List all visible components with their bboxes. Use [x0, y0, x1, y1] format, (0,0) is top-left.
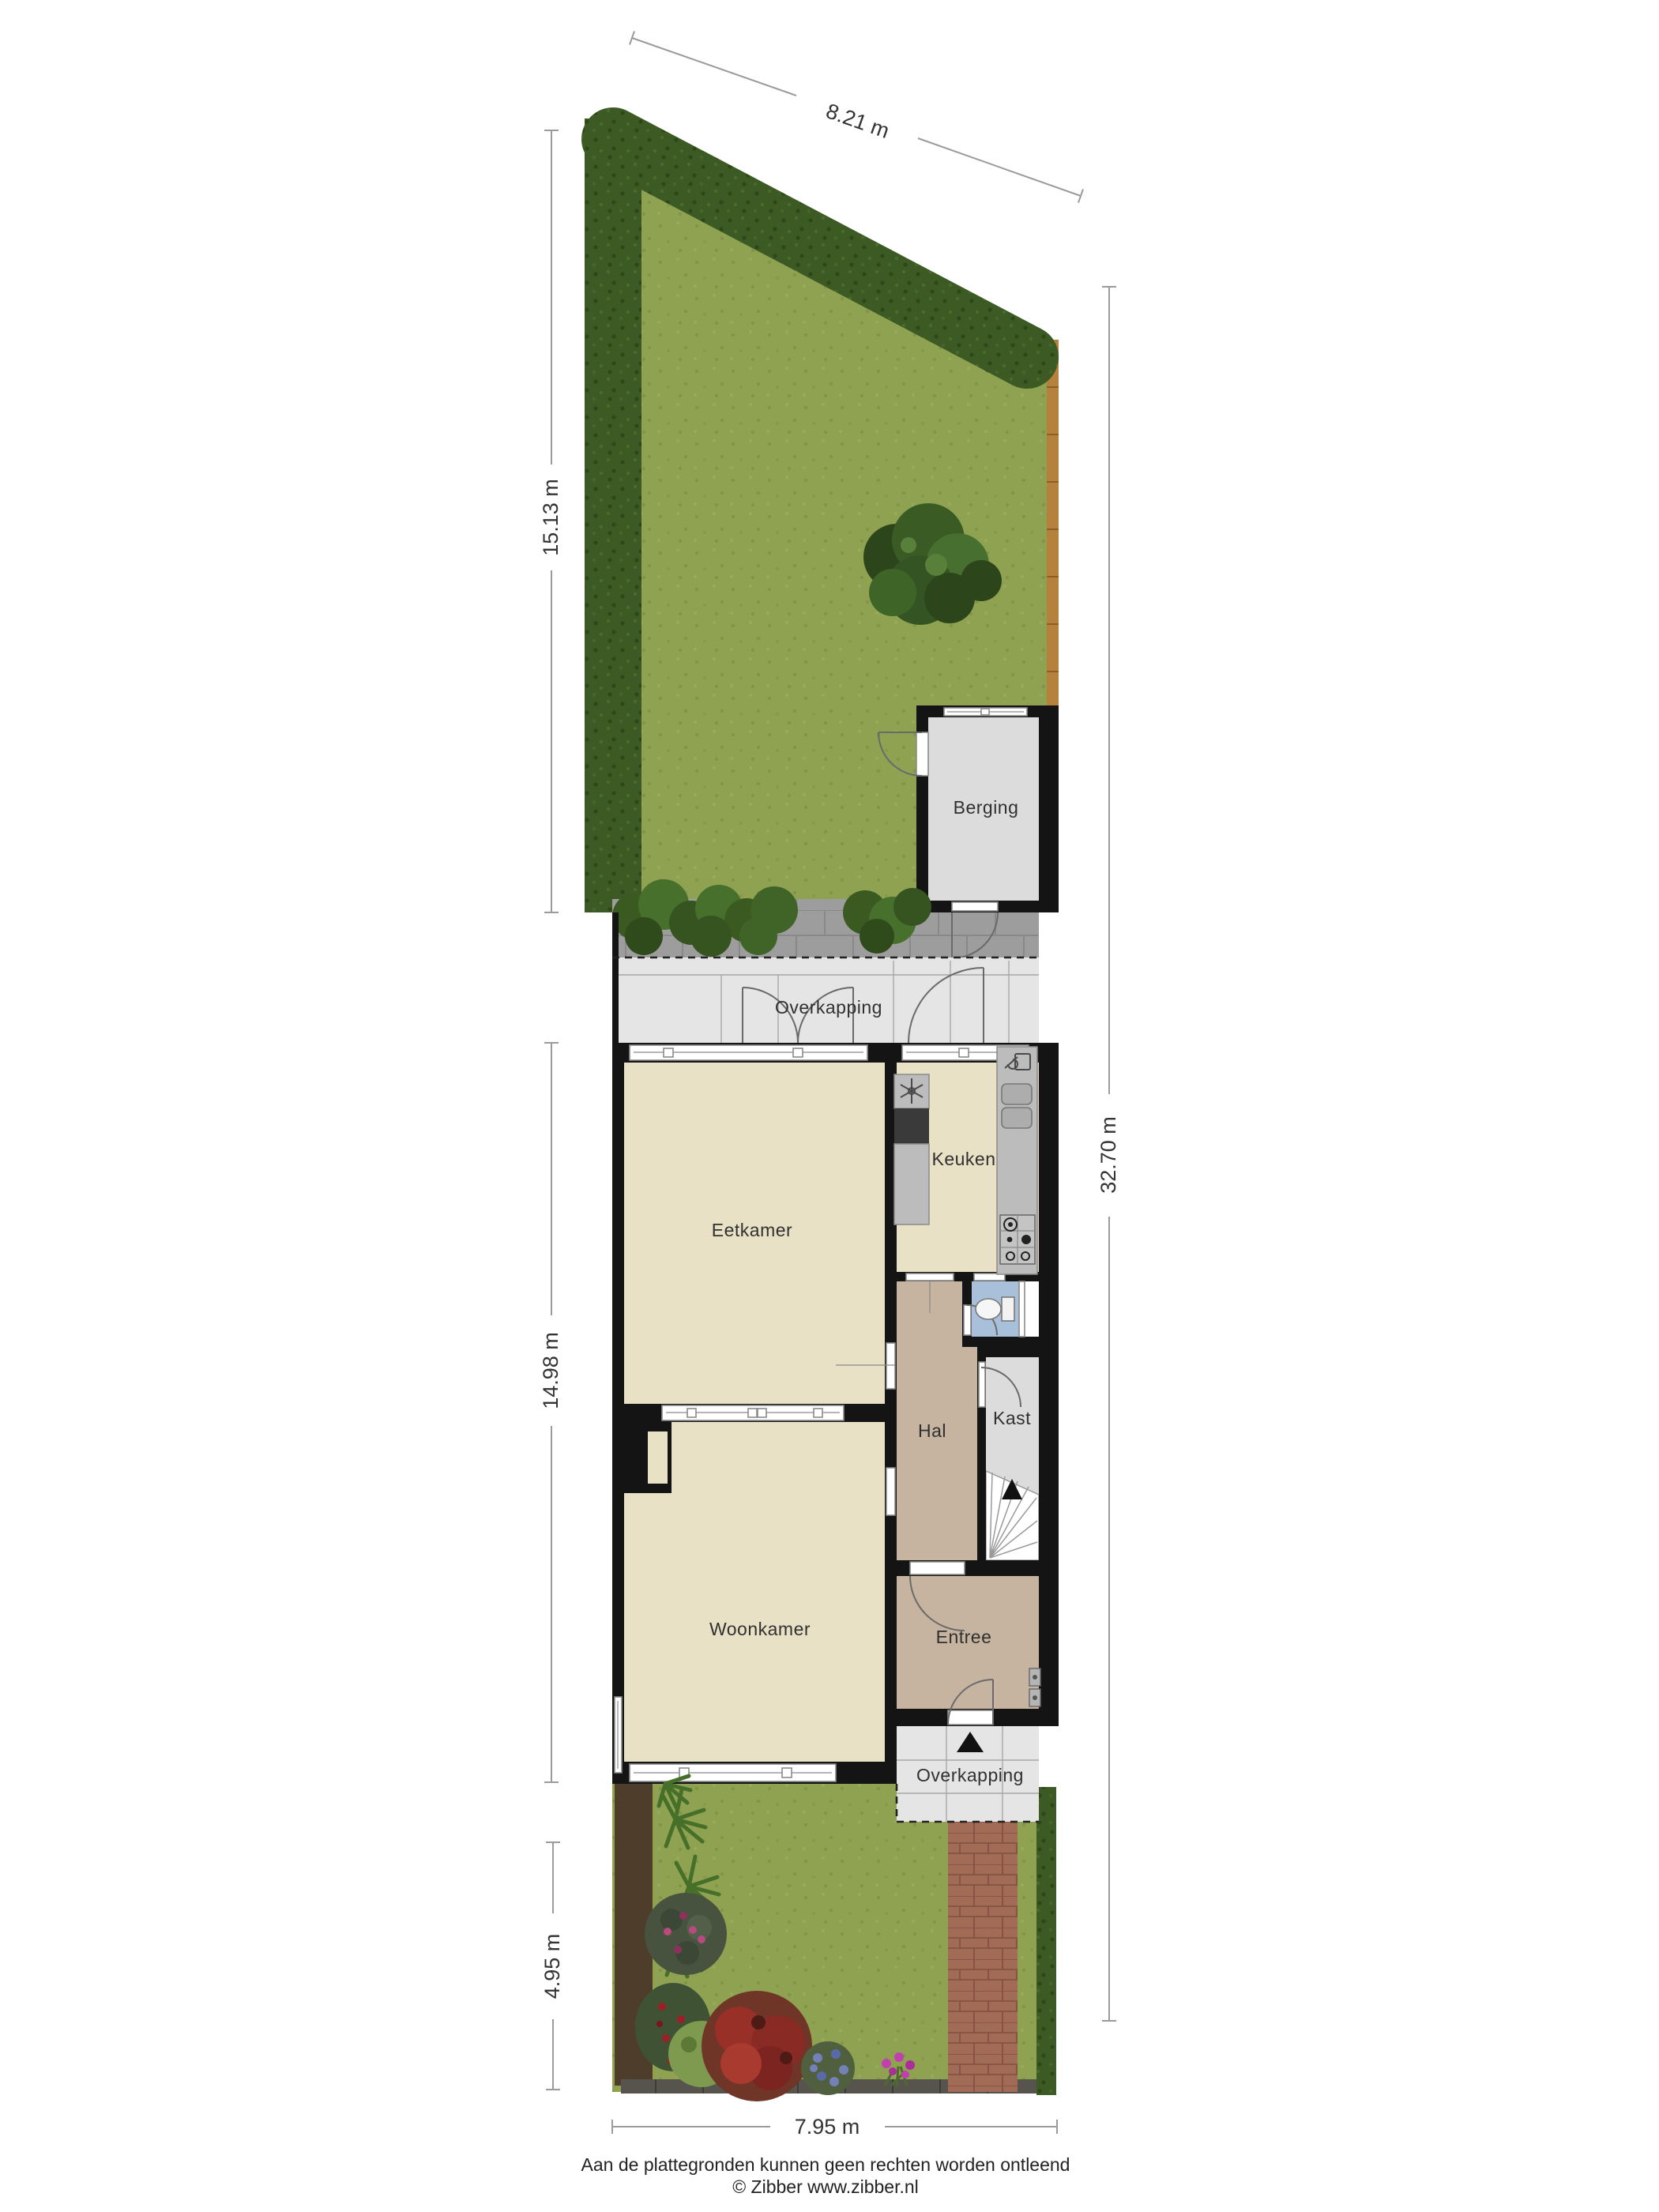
house: Eetkamer Keuken Hal Kast Woonkamer Entre…	[612, 1043, 1059, 1784]
chimney-recess	[648, 1431, 668, 1484]
eetkamer-label: Eetkamer	[712, 1220, 792, 1240]
floor-plan-canvas: Berging Overkapping	[0, 0, 1659, 2212]
footer-credit: © Zibber www.zibber.nl	[732, 2176, 919, 2197]
doorway	[886, 1468, 895, 1515]
kast-label: Kast	[993, 1408, 1031, 1428]
berging-label: Berging	[954, 797, 1019, 818]
window	[630, 1764, 836, 1781]
dim-front-garden-depth: 4.95 m	[540, 1842, 564, 2090]
toilet-icon	[976, 1297, 1014, 1321]
front-path	[948, 1822, 1018, 2092]
hal-label: Hal	[918, 1420, 946, 1441]
hedge-left	[585, 118, 641, 912]
dim-total-depth: 32.70 m	[1097, 287, 1120, 2021]
wall-right	[1039, 1043, 1059, 1726]
entree-label: Entree	[936, 1627, 992, 1647]
dim-house-depth: 14.98 m	[539, 1043, 562, 1782]
dim-total-depth-label: 32.70 m	[1097, 1116, 1120, 1194]
dim-house-depth-label: 14.98 m	[539, 1332, 562, 1409]
window	[615, 1697, 622, 1773]
gas-hob-icon	[1000, 1215, 1035, 1264]
berging-wall-right	[1039, 705, 1059, 912]
rose-bush	[645, 1893, 727, 1975]
dim-top-width-label: 8.21 m	[823, 99, 893, 143]
dim-front-garden-depth-label: 4.95 m	[540, 1934, 564, 1999]
kitchen-island	[894, 1074, 929, 1224]
wall-toilet-bottom	[962, 1337, 1039, 1347]
footer-disclaimer: Aan de plattegronden kunnen geen rechten…	[581, 2154, 1070, 2175]
dim-front-width: 7.95 m	[612, 2115, 1057, 2139]
overkapping-front: Overkapping	[897, 1726, 1039, 1822]
cooktop-dark	[894, 1108, 929, 1144]
ensuite-doors	[662, 1405, 844, 1420]
overkapping-back-label: Overkapping	[775, 997, 882, 1018]
window	[630, 1045, 867, 1060]
keuken-label: Keuken	[931, 1149, 995, 1169]
footer: Aan de plattegronden kunnen geen rechten…	[581, 2154, 1070, 2197]
hedge-front-right	[1036, 1787, 1056, 2095]
blue-flowers	[801, 2041, 855, 2095]
floor-plan-svg: Berging Overkapping	[0, 0, 1659, 2212]
woonkamer-label: Woonkamer	[709, 1619, 811, 1639]
dim-front-width-label: 7.95 m	[795, 2115, 860, 2139]
toilet-glass	[1019, 1281, 1025, 1337]
kitchen-counter	[997, 1047, 1037, 1274]
plot-edge-left	[612, 912, 619, 1043]
dim-back-garden-depth: 15.13 m	[539, 130, 562, 912]
dim-back-garden-depth-label: 15.13 m	[539, 479, 562, 556]
window	[944, 708, 1027, 716]
toilet-niche	[1025, 1281, 1039, 1337]
overkapping-front-label: Overkapping	[916, 1765, 1024, 1785]
red-bush	[702, 1991, 812, 2101]
wall-kast-top	[977, 1347, 1039, 1357]
